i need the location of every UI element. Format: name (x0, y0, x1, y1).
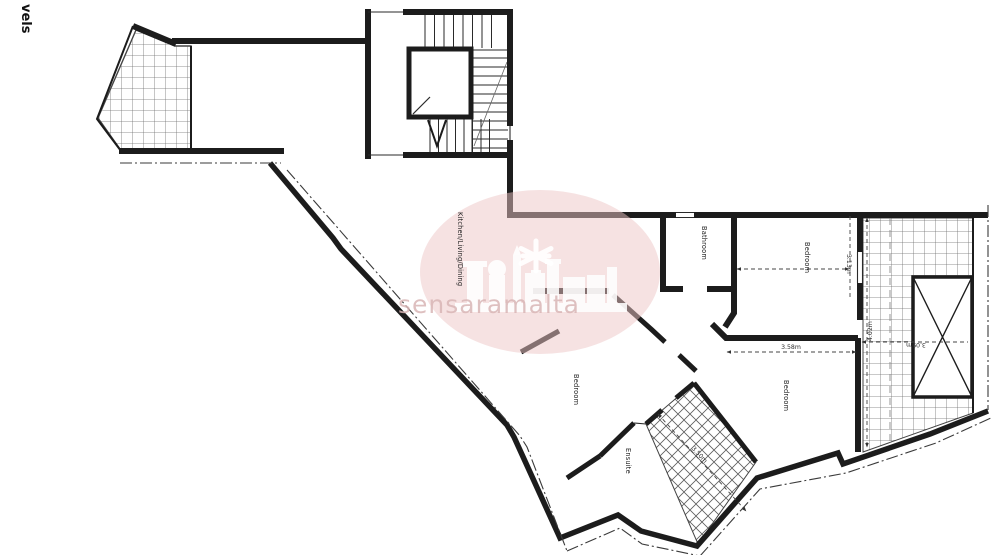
terrace-top-left-hatch (98, 30, 191, 149)
floorplan-page: sensaramalta vels Kitchen/Living/Dining … (0, 0, 995, 555)
watermark-text: sensaramalta (398, 290, 580, 319)
room-label-bedroom-bottom-right: Bedroom (782, 380, 790, 411)
dim-label-4-02m: 4.02m (867, 321, 874, 341)
room-label-kitchen-living-dining: Kitchen/Living/Dining (456, 212, 464, 286)
dim-label-3-13m: 3.13m (845, 254, 852, 274)
side-label: vels (18, 4, 33, 34)
floorplan-drawing: sensaramalta vels Kitchen/Living/Dining … (0, 0, 995, 555)
stair-flight-line (474, 62, 507, 146)
room-label-bedroom-top-right: Bedroom (803, 242, 811, 273)
watermark: sensaramalta (398, 190, 660, 354)
room-label-bathroom: Bathroom (700, 226, 708, 260)
dim-label-3-09m: 3.09m (906, 341, 926, 348)
room-label-bedroom-middle: Bedroom (572, 374, 580, 405)
stairwell (409, 14, 510, 153)
elevator (409, 49, 471, 146)
dim-label-3-58m: 3.58m (781, 344, 801, 351)
skylight-shaft (913, 277, 972, 397)
terrace-diamond-hatch (646, 383, 756, 544)
room-label-ensuite: Ensuite (624, 448, 632, 474)
